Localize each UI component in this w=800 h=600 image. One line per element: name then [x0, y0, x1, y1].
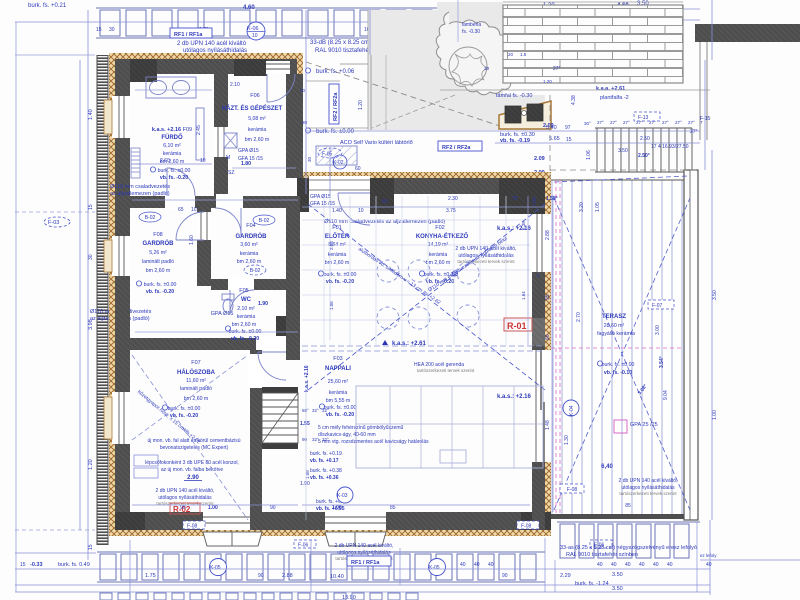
svg-text:K-02: K-02 [333, 160, 344, 166]
svg-text:40: 40 [667, 562, 673, 568]
svg-text:3.50: 3.50 [612, 572, 623, 578]
svg-text:TERASZ: TERASZ [602, 314, 626, 320]
svg-text:ELŐTÉR: ELŐTÉR [325, 232, 350, 240]
svg-text:5 mm vtg. rozsdamentes acél ka: 5 mm vtg. rozsdamentes acél kavicságy ha… [318, 439, 429, 445]
svg-text:1.00: 1.00 [712, 410, 718, 420]
svg-text:F-08: F-08 [521, 524, 532, 530]
svg-text:90: 90 [302, 437, 308, 442]
svg-text:F04: F04 [246, 223, 255, 229]
svg-text:4.60: 4.60 [243, 5, 255, 11]
svg-text:vb. fs. -0.20: vb. fs. -0.20 [326, 412, 354, 418]
svg-text:85: 85 [390, 505, 396, 511]
svg-text:RF1 / RF1a: RF1 / RF1a [351, 560, 380, 566]
svg-text:2.30: 2.30 [448, 196, 458, 202]
svg-text:2.88: 2.88 [545, 230, 551, 240]
svg-text:60: 60 [355, 166, 361, 172]
svg-text:burk. fs. +0.38: burk. fs. +0.38 [310, 468, 342, 474]
svg-text:10: 10 [191, 207, 197, 213]
svg-text:60: 60 [545, 334, 551, 340]
svg-text:32°: 32° [322, 437, 329, 442]
svg-text:2 db UPN 140 acél kiváltó,: 2 db UPN 140 acél kiváltó, [619, 478, 678, 484]
svg-text:15: 15 [96, 27, 102, 33]
svg-text:kerámia: kerámia [248, 127, 267, 133]
svg-text:F03: F03 [333, 356, 342, 362]
svg-text:97: 97 [565, 125, 571, 131]
svg-text:95: 95 [545, 294, 551, 300]
svg-text:15: 15 [566, 137, 572, 143]
svg-text:ACO Self Vario kültéri lábtörl: ACO Self Vario kültéri lábtörlő [340, 140, 413, 146]
svg-text:30°: 30° [584, 121, 591, 126]
svg-text:30: 30 [302, 120, 308, 125]
svg-text:F-08: F-08 [187, 524, 198, 530]
svg-text:60: 60 [382, 199, 388, 205]
svg-text:lépcsőfokonként 3 db UPE 80 ac: lépcsőfokonként 3 db UPE 80 acél konzol, [145, 460, 239, 466]
svg-text:1.40: 1.40 [332, 208, 342, 214]
svg-text:75: 75 [512, 196, 518, 202]
svg-text:40: 40 [625, 562, 631, 568]
svg-text:K-05: K-05 [429, 565, 440, 571]
svg-text:bm 2,60 m: bm 2,60 m [232, 322, 257, 328]
svg-text:F-05: F-05 [322, 152, 333, 158]
svg-text:tartószerkezeti tervek szerint: tartószerkezeti tervek szerint [417, 368, 475, 373]
svg-text:40: 40 [488, 562, 494, 568]
svg-text:2.50°: 2.50° [638, 153, 650, 159]
svg-text:1.06: 1.06 [329, 301, 334, 310]
svg-text:1.00: 1.00 [208, 505, 218, 511]
svg-text:vb. fs. -0.10: vb. fs. -0.10 [604, 370, 632, 376]
svg-text:GARDRÓB: GARDRÓB [236, 232, 268, 240]
svg-text:5,08 m²: 5,08 m² [248, 116, 266, 122]
svg-text:27°: 27° [553, 66, 561, 72]
svg-text:RF2 / RF2a: RF2 / RF2a [442, 145, 471, 151]
svg-text:fs. -0.30: fs. -0.30 [462, 29, 480, 35]
svg-text:15: 15 [88, 544, 94, 550]
svg-text:2.70: 2.70 [576, 312, 582, 322]
svg-text:F-07: F-07 [652, 303, 663, 309]
svg-text:M: M [226, 155, 230, 161]
svg-text:F01: F01 [332, 225, 341, 231]
svg-text:1.58°: 1.58° [546, 196, 558, 202]
svg-text:40: 40 [597, 562, 603, 568]
svg-text:vb. fs. -0.20: vb. fs. -0.20 [160, 175, 188, 181]
svg-text:27°: 27° [597, 120, 604, 125]
svg-text:5,26 m²: 5,26 m² [149, 250, 167, 256]
svg-text:F-13: F-13 [638, 115, 649, 121]
svg-text:K-06: K-06 [247, 26, 259, 32]
svg-text:30: 30 [109, 27, 115, 33]
svg-text:HÁZT. ÉS GÉPÉSZET: HÁZT. ÉS GÉPÉSZET [222, 104, 283, 112]
svg-text:27°: 27° [662, 120, 669, 125]
svg-text:bm 2,60 m: bm 2,60 m [146, 268, 171, 274]
svg-text:27°: 27° [610, 120, 617, 125]
svg-text:GFA 15 /15: GFA 15 /15 [238, 156, 263, 162]
svg-text:2 db UPN 140 acél kiváltó,: 2 db UPN 140 acél kiváltó, [335, 543, 394, 549]
svg-text:1.5: 1.5 [520, 52, 527, 57]
svg-text:HÁLÓSZOBA: HÁLÓSZOBA [177, 368, 216, 376]
svg-text:6,10 m²: 6,10 m² [163, 143, 181, 149]
svg-text:3.50: 3.50 [618, 148, 628, 154]
svg-text:NAPPALI: NAPPALI [325, 366, 351, 372]
svg-text:tartószerkezeti tervek szerint: tartószerkezeti tervek szerint [619, 491, 677, 496]
svg-text:3.00: 3.00 [655, 325, 661, 335]
svg-text:90: 90 [270, 505, 276, 511]
svg-text:GPA Ø15: GPA Ø15 [310, 194, 331, 200]
svg-text:burk. fs. ±0.00: burk. fs. ±0.00 [316, 129, 355, 135]
svg-text:F-03: F-03 [48, 220, 59, 226]
svg-text:F07: F07 [191, 360, 200, 366]
svg-text:GPA Ø15: GPA Ø15 [238, 148, 259, 154]
svg-text:2.29: 2.29 [560, 573, 571, 579]
svg-text:2.45: 2.45 [196, 125, 202, 135]
svg-text:Ø110 mm csaladvezetés: Ø110 mm csaladvezetés [110, 184, 170, 190]
svg-text:3.20: 3.20 [579, 202, 585, 212]
svg-text:vb. fs. +0.17: vb. fs. +0.17 [310, 458, 339, 464]
svg-text:40: 40 [653, 562, 659, 568]
svg-text:40: 40 [706, 562, 712, 568]
svg-text:F-06: F-06 [298, 543, 309, 549]
svg-text:32°: 32° [312, 437, 319, 442]
svg-text:GARDRÓB: GARDRÓB [143, 239, 175, 247]
svg-text:F08: F08 [153, 232, 162, 238]
svg-text:1.55: 1.55 [300, 421, 310, 427]
svg-text:bm 5,55 m: bm 5,55 m [326, 398, 351, 404]
svg-text:40: 40 [460, 562, 466, 568]
svg-text:kerámia: kerámia [163, 151, 182, 157]
svg-text:30: 30 [484, 66, 490, 71]
svg-text:K-05: K-05 [210, 565, 221, 571]
svg-text:1.30: 1.30 [564, 435, 570, 445]
svg-text:burk. fs. +0.06: burk. fs. +0.06 [316, 69, 355, 75]
svg-text:laminált padló: laminált padló [142, 259, 174, 265]
svg-text:burk. fs. +0.19: burk. fs. +0.19 [310, 451, 342, 457]
svg-text:B-02: B-02 [259, 218, 270, 224]
svg-text:GFA 15 /15: GFA 15 /15 [310, 201, 335, 207]
svg-text:2.88: 2.88 [282, 573, 293, 579]
svg-text:k.a.a. +2.61: k.a.a. +2.61 [596, 86, 625, 92]
svg-text:90: 90 [180, 505, 186, 511]
svg-text:88°: 88° [302, 408, 309, 413]
svg-text:40: 40 [474, 562, 480, 568]
svg-text:2.38: 2.38 [521, 221, 526, 230]
svg-text:1.40: 1.40 [88, 109, 94, 120]
svg-text:burk. fs. ±0.00: burk. fs. ±0.00 [324, 272, 357, 278]
svg-text:17 4 16.93/27.50: 17 4 16.93/27.50 [651, 144, 689, 150]
svg-text:2.09: 2.09 [534, 156, 545, 162]
svg-text:3.75: 3.75 [446, 208, 456, 214]
svg-text:2 db UPN 140 acél kiváltó,: 2 db UPN 140 acél kiváltó, [156, 488, 215, 494]
svg-text:90: 90 [502, 573, 508, 579]
svg-text:32°: 32° [322, 408, 329, 413]
svg-text:2.50: 2.50 [640, 136, 650, 142]
svg-text:bm 2,60 m: bm 2,60 m [245, 137, 270, 143]
svg-text:k.a.s.: +2.61: k.a.s.: +2.61 [392, 341, 427, 347]
svg-text:k.a.s. +2.16 F09: k.a.s. +2.16 F09 [152, 127, 192, 133]
svg-text:laminált padló: laminált padló [180, 386, 212, 392]
svg-text:1.20: 1.20 [543, 79, 552, 84]
svg-text:10: 10 [252, 33, 258, 39]
svg-text:33-as (8.25 x 8.25 cm) négyszö: 33-as (8.25 x 8.25 cm) négyszögszelvényű… [560, 545, 697, 551]
svg-text:3.50: 3.50 [712, 290, 718, 300]
svg-text:85: 85 [625, 503, 631, 509]
svg-text:B-02: B-02 [145, 215, 156, 221]
svg-text:RF1 / RF1a: RF1 / RF1a [174, 32, 203, 38]
svg-text:vb. fs. -0.20: vb. fs. -0.20 [146, 289, 174, 295]
svg-text:burk. fs. +0.21: burk. fs. +0.21 [28, 3, 67, 9]
svg-text:B-02: B-02 [250, 268, 261, 274]
svg-text:GPA 25 /25: GPA 25 /25 [630, 422, 658, 428]
svg-text:1.06: 1.06 [586, 150, 592, 160]
svg-text:15: 15 [88, 204, 94, 210]
svg-text:burk. fs. ±0.00: burk. fs. ±0.00 [144, 282, 177, 288]
svg-text:FÜRDŐ: FÜRDŐ [161, 134, 183, 141]
svg-text:7.00: 7.00 [532, 197, 538, 207]
svg-text:15: 15 [20, 562, 26, 568]
svg-text:32°: 32° [312, 408, 319, 413]
svg-text:13.90: 13.90 [342, 595, 356, 600]
svg-text:2.90: 2.90 [187, 475, 199, 481]
svg-text:27°: 27° [690, 129, 698, 135]
svg-text:5.40: 5.40 [546, 125, 557, 131]
svg-text:F-15: F-15 [700, 116, 711, 122]
svg-text:1.48: 1.48 [545, 420, 551, 430]
svg-text:burk. fs. -1.24: burk. fs. -1.24 [575, 581, 609, 587]
svg-text:20: 20 [508, 52, 514, 57]
svg-text:28,60 m²: 28,60 m² [604, 323, 625, 329]
svg-text:27°: 27° [623, 120, 630, 125]
svg-text:kerámia: kerámia [429, 252, 448, 258]
svg-text:2.60: 2.60 [160, 158, 170, 164]
svg-text:1.75: 1.75 [145, 573, 156, 579]
svg-text:2,10 m²: 2,10 m² [237, 306, 255, 312]
svg-text:burk. fs. ±0.00: burk. fs. ±0.00 [158, 168, 191, 174]
svg-text:40: 40 [639, 562, 645, 568]
svg-text:1.20: 1.20 [358, 100, 364, 110]
svg-text:burk. fs. ±0.00: burk. fs. ±0.00 [168, 406, 201, 412]
svg-text:10: 10 [200, 158, 206, 164]
svg-text:fagyálló kerámia: fagyálló kerámia [597, 331, 635, 337]
svg-text:2 db UPN 140 acél kiváltó: 2 db UPN 140 acél kiváltó [177, 41, 247, 47]
svg-text:K-04: K-04 [569, 405, 575, 416]
svg-text:1.60: 1.60 [189, 235, 195, 245]
svg-text:lambéria: lambéria [462, 22, 481, 28]
svg-text:R-01: R-01 [507, 321, 527, 331]
svg-text:ez lefoly: ez lefoly [700, 553, 717, 558]
svg-text:1.90: 1.90 [300, 481, 310, 487]
svg-text:bm 2,60 m: bm 2,60 m [426, 260, 451, 266]
svg-text:k.a.s. +2.16: k.a.s. +2.16 [304, 365, 310, 392]
svg-text:K-03: K-03 [337, 493, 348, 499]
svg-text:11,60 m²: 11,60 m² [186, 378, 206, 384]
svg-text:9.04: 9.04 [663, 390, 669, 400]
svg-text:k.a.s.: +2.16: k.a.s.: +2.16 [497, 226, 532, 232]
svg-text:az aljzatlemezen (padló): az aljzatlemezen (padló) [110, 191, 170, 197]
svg-text:F-08: F-08 [567, 487, 578, 493]
svg-text:60: 60 [300, 88, 306, 93]
svg-text:vb. fs. -0.20: vb. fs. -0.20 [231, 336, 259, 342]
svg-text:65: 65 [178, 207, 184, 213]
svg-text:5.65: 5.65 [549, 136, 560, 142]
svg-text:10.40: 10.40 [330, 574, 344, 580]
svg-text:bm 2,60 m: bm 2,60 m [325, 260, 350, 266]
svg-text:1.20: 1.20 [88, 459, 94, 470]
svg-text:2.88: 2.88 [329, 241, 334, 250]
svg-text:F02: F02 [435, 225, 444, 231]
svg-text:plantfalfa -2: plantfalfa -2 [600, 95, 629, 101]
svg-text:az új mon. vb. falba bekötve: az új mon. vb. falba bekötve [161, 467, 223, 473]
svg-text:10: 10 [358, 208, 364, 214]
svg-text:25,60 m²: 25,60 m² [328, 379, 349, 385]
svg-text:vb. fs. -0.19: vb. fs. -0.19 [500, 138, 530, 144]
svg-text:bm 2,60 m: bm 2,60 m [237, 259, 262, 265]
svg-text:1.00: 1.00 [332, 505, 342, 511]
svg-text:27°: 27° [675, 120, 682, 125]
svg-text:1.64: 1.64 [521, 291, 526, 300]
svg-text:vb. fs. +0.36: vb. fs. +0.36 [310, 475, 339, 481]
svg-text:30: 30 [88, 254, 94, 260]
svg-text:30: 30 [307, 156, 312, 162]
svg-text:RF2 / RF2a: RF2 / RF2a [333, 92, 339, 121]
svg-text:1.05: 1.05 [595, 202, 601, 212]
svg-text:RAL 9010 tisztafehér színben: RAL 9010 tisztafehér színben [566, 552, 638, 558]
svg-text:kerámia: kerámia [328, 252, 347, 258]
svg-text:4.38: 4.38 [571, 95, 577, 105]
svg-text:3.54°: 3.54° [659, 356, 665, 368]
svg-text:F05: F05 [239, 288, 248, 294]
svg-text:SZ: SZ [228, 170, 234, 176]
svg-text:kerámia: kerámia [237, 314, 256, 320]
svg-text:3.50: 3.50 [612, 586, 623, 592]
svg-text:6,40: 6,40 [601, 464, 613, 470]
svg-text:burk. fs. 0.49: burk. fs. 0.49 [58, 562, 90, 568]
svg-text:WC: WC [241, 297, 252, 303]
svg-text:5 cm mély fehérszínű gömbölyűs: 5 cm mély fehérszínű gömbölyűszemű [318, 425, 404, 431]
svg-text:-0.33: -0.33 [30, 562, 43, 568]
svg-text:90: 90 [258, 573, 264, 579]
svg-text:F06: F06 [250, 93, 259, 99]
svg-text:2.10: 2.10 [230, 82, 240, 88]
svg-text:kerámia: kerámia [329, 390, 348, 396]
svg-text:3,60 m²: 3,60 m² [240, 242, 258, 248]
svg-text:27°: 27° [688, 120, 695, 125]
svg-text:burk. fs. ±0.00: burk. fs. ±0.00 [602, 362, 635, 368]
svg-text:bevonatszigetelés (MC Expert): bevonatszigetelés (MC Expert) [160, 445, 229, 451]
svg-text:kerámia: kerámia [240, 251, 259, 257]
svg-text:KONYHA-ÉTKEZŐ: KONYHA-ÉTKEZŐ [416, 232, 469, 240]
svg-text:GPA Ø15: GPA Ø15 [211, 311, 234, 317]
svg-text:1.90: 1.90 [258, 301, 268, 307]
svg-text:40: 40 [611, 562, 617, 568]
svg-text:támfal fs. -0.30: támfal fs. -0.30 [496, 93, 532, 99]
